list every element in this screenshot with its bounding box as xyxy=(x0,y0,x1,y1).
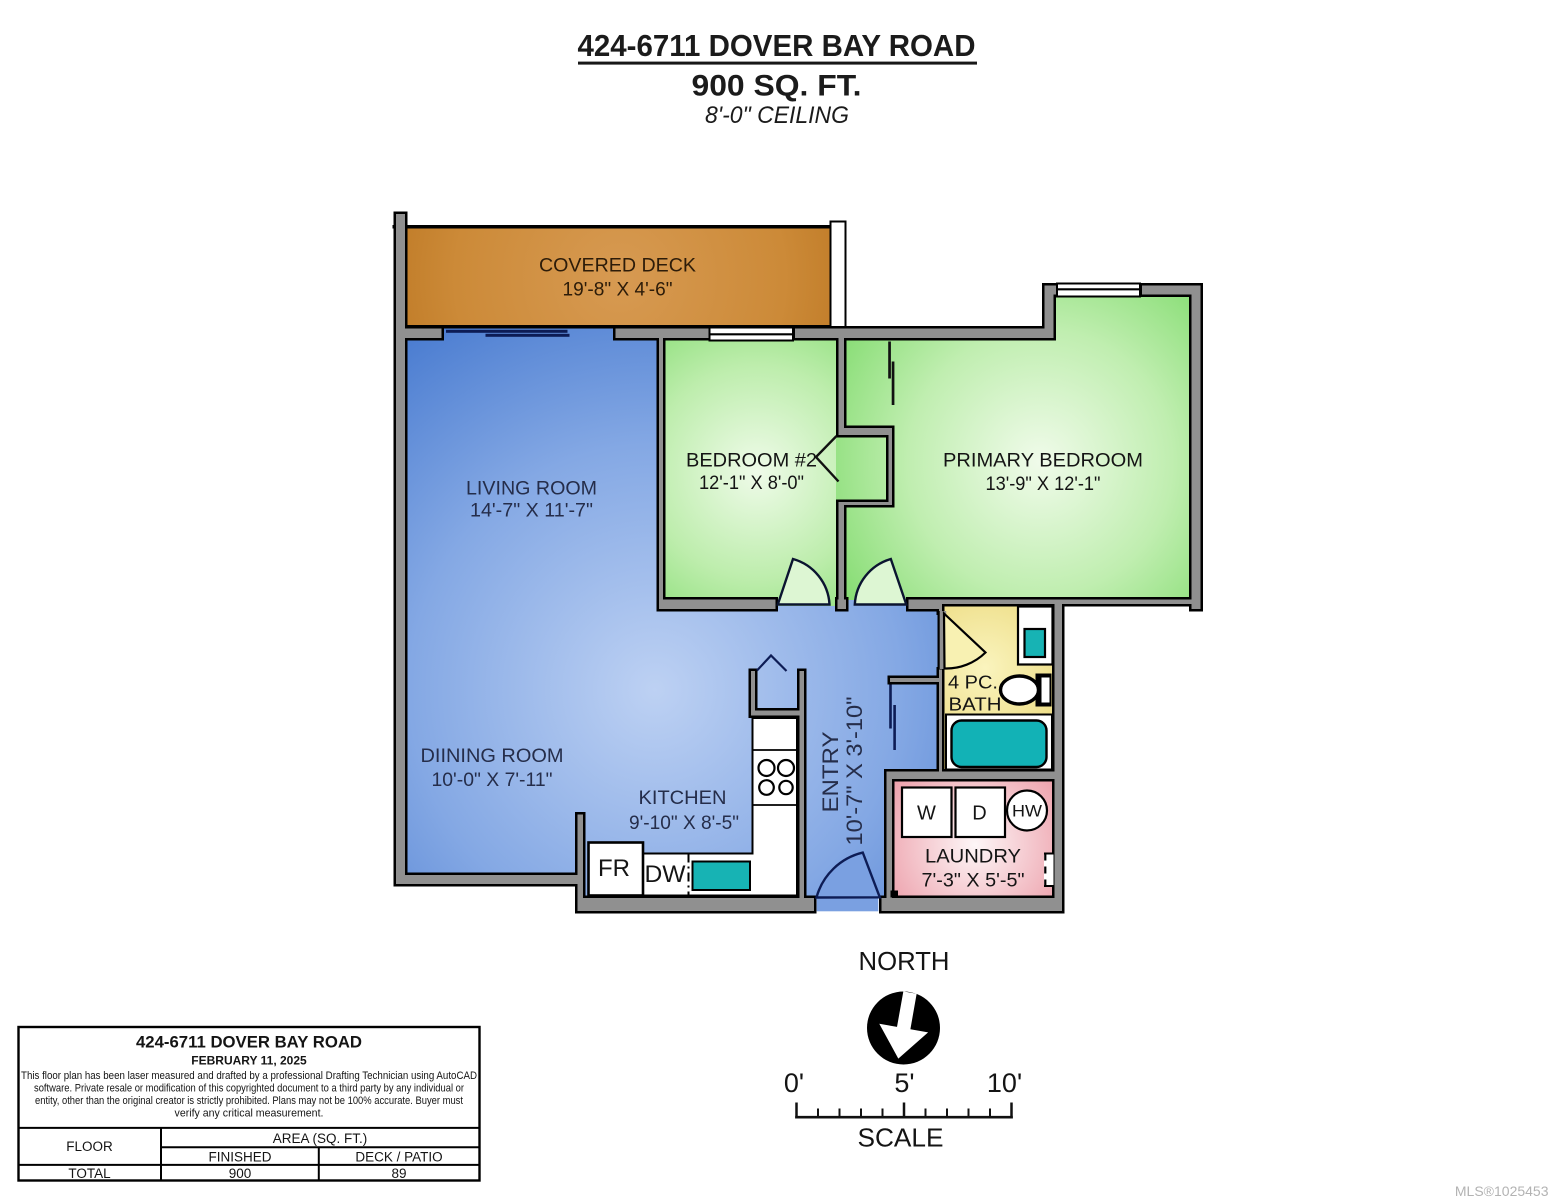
svg-text:13'-9" X 12'-1": 13'-9" X 12'-1" xyxy=(986,474,1101,495)
svg-text:LAUNDRY: LAUNDRY xyxy=(925,846,1021,868)
svg-text:FLOOR: FLOOR xyxy=(66,1139,113,1154)
svg-text:DECK / PATIO: DECK / PATIO xyxy=(355,1150,442,1165)
svg-text:SCALE: SCALE xyxy=(858,1123,944,1153)
svg-text:89: 89 xyxy=(391,1166,406,1181)
svg-text:BEDROOM #2: BEDROOM #2 xyxy=(686,451,817,472)
svg-text:NORTH: NORTH xyxy=(859,946,950,976)
svg-text:4 PC.: 4 PC. xyxy=(948,673,998,693)
svg-text:5': 5' xyxy=(894,1068,914,1098)
svg-text:900 SQ. FT.: 900 SQ. FT. xyxy=(692,70,862,103)
svg-text:0': 0' xyxy=(784,1068,804,1098)
svg-text:FEBRUARY 11, 2025: FEBRUARY 11, 2025 xyxy=(191,1054,307,1068)
svg-text:FINISHED: FINISHED xyxy=(208,1150,271,1165)
svg-text:424-6711 DOVER BAY ROAD: 424-6711 DOVER BAY ROAD xyxy=(578,28,976,63)
svg-text:DIINING ROOM: DIINING ROOM xyxy=(421,746,564,767)
svg-text:D: D xyxy=(972,803,986,825)
svg-text:900: 900 xyxy=(229,1166,252,1181)
svg-text:10': 10' xyxy=(987,1068,1022,1098)
svg-text:14'-7" X 11'-7": 14'-7" X 11'-7" xyxy=(470,501,593,522)
svg-text:FR: FR xyxy=(598,855,630,882)
svg-text:W: W xyxy=(917,803,936,825)
svg-text:HW: HW xyxy=(1012,803,1042,821)
svg-text:software. Private resale or mo: software. Private resale or modification… xyxy=(34,1083,464,1095)
svg-text:12'-1" X 8'-0": 12'-1" X 8'-0" xyxy=(699,473,804,494)
svg-text:PRIMARY BEDROOM: PRIMARY BEDROOM xyxy=(943,451,1143,472)
svg-text:KITCHEN: KITCHEN xyxy=(639,788,727,809)
svg-text:7'-3" X 5'-5": 7'-3" X 5'-5" xyxy=(922,870,1025,892)
svg-text:entity, other than the origina: entity, other than the original creator … xyxy=(35,1095,463,1107)
svg-text:verify any critical measuremen: verify any critical measurement. xyxy=(175,1108,324,1120)
svg-text:10'-0" X 7'-11": 10'-0" X 7'-11" xyxy=(432,770,553,791)
svg-text:DW: DW xyxy=(645,861,686,888)
svg-text:8'-0" CEILING: 8'-0" CEILING xyxy=(705,102,849,129)
svg-text:MLS®1025453: MLS®1025453 xyxy=(1455,1183,1549,1199)
svg-text:10'-7" X 3'-10": 10'-7" X 3'-10" xyxy=(842,697,867,846)
svg-text:BATH: BATH xyxy=(949,695,1002,715)
svg-text:This floor plan has been laser: This floor plan has been laser measured … xyxy=(21,1070,477,1082)
svg-text:LIVING ROOM: LIVING ROOM xyxy=(466,479,597,500)
svg-text:9'-10" X 8'-5": 9'-10" X 8'-5" xyxy=(629,813,739,834)
svg-text:19'-8" X 4'-6": 19'-8" X 4'-6" xyxy=(563,280,673,301)
svg-text:ENTRY: ENTRY xyxy=(818,731,843,812)
svg-text:COVERED DECK: COVERED DECK xyxy=(539,256,696,277)
svg-text:AREA (SQ. FT.): AREA (SQ. FT.) xyxy=(273,1131,368,1146)
svg-text:424-6711 DOVER BAY ROAD: 424-6711 DOVER BAY ROAD xyxy=(136,1034,362,1052)
svg-text:TOTAL: TOTAL xyxy=(68,1166,111,1181)
